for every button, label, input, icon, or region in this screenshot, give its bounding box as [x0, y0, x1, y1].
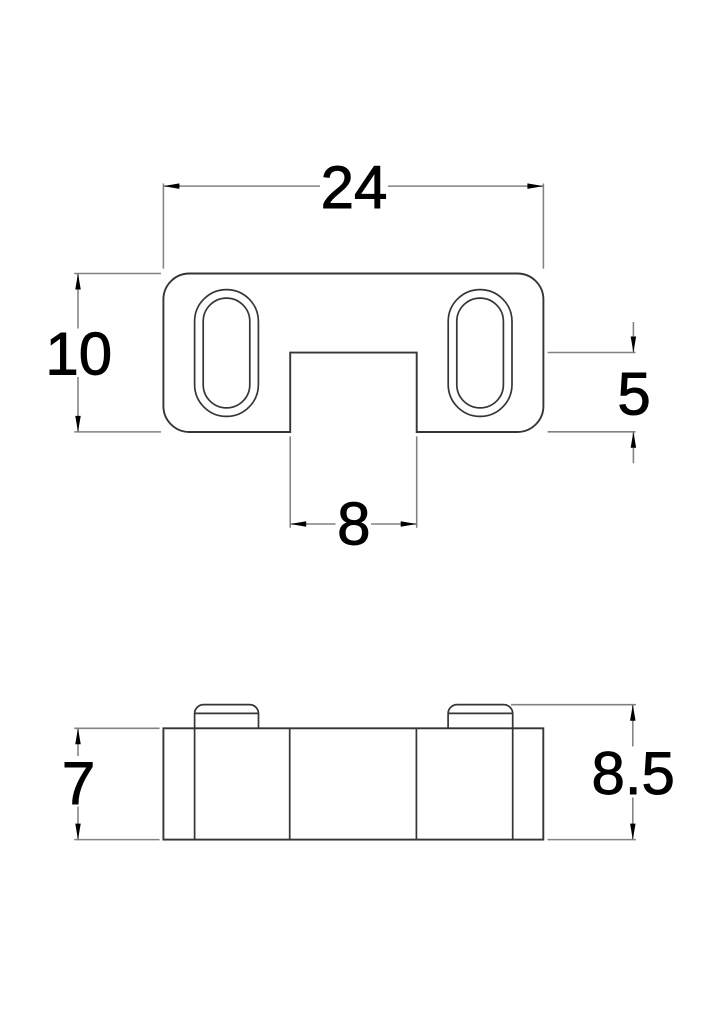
svg-text:5: 5 — [617, 361, 650, 428]
svg-text:10: 10 — [45, 320, 112, 387]
svg-text:8: 8 — [337, 491, 370, 558]
svg-text:7: 7 — [62, 750, 95, 817]
svg-text:8.5: 8.5 — [591, 740, 674, 807]
svg-text:24: 24 — [321, 154, 388, 221]
